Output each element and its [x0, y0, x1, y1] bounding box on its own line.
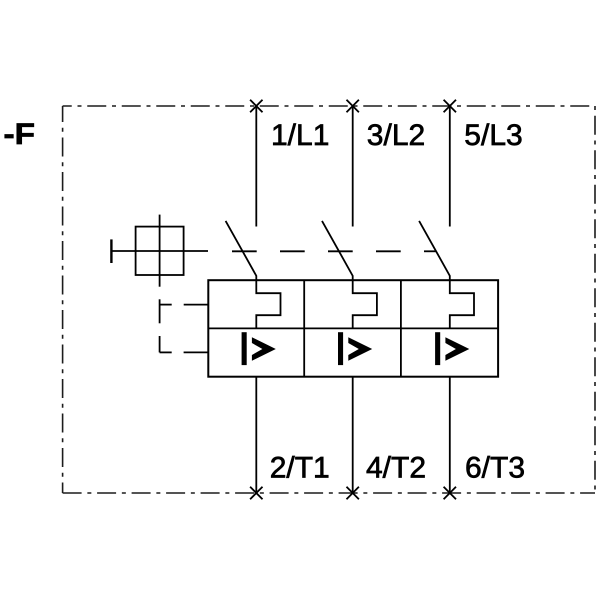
svg-text:6/T3: 6/T3: [465, 452, 525, 485]
svg-text:-F: -F: [4, 118, 36, 151]
svg-text:5/L3: 5/L3: [464, 119, 522, 152]
svg-text:3/L2: 3/L2: [367, 119, 425, 152]
svg-text:4/T2: 4/T2: [366, 452, 426, 485]
svg-text:2/T1: 2/T1: [270, 452, 330, 485]
svg-text:1/L1: 1/L1: [271, 119, 329, 152]
